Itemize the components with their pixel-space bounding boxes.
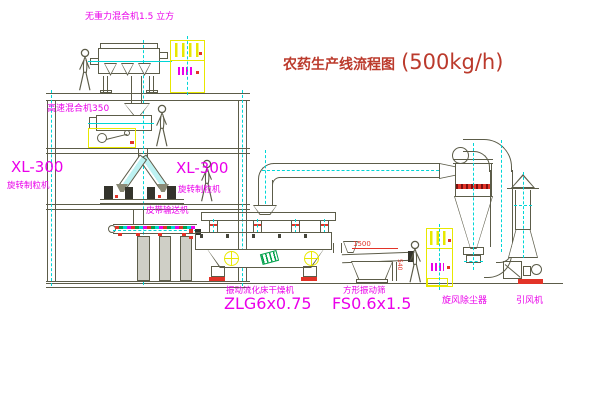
- stack-cross: [514, 205, 532, 206]
- duct-top-wall: [273, 163, 440, 164]
- dryer-body-bolts: [200, 234, 328, 238]
- elevator2-boot: [427, 278, 448, 286]
- elevator2-red-dot: [448, 239, 451, 242]
- label-high-speed-mixer: 高速混合机350: [47, 105, 109, 114]
- belt-stripes: [115, 226, 195, 229]
- centerline-column-left: [51, 90, 52, 286]
- fan-base: [518, 279, 543, 284]
- dryer-hood: [201, 212, 336, 221]
- dryer-foot-pad: [301, 277, 317, 281]
- belt-foot: [118, 233, 122, 236]
- duct-elbow-outer: [258, 163, 276, 181]
- label-granulator-left-name: 旋转制粒机: [7, 182, 50, 191]
- vibrator-cross: [311, 251, 312, 266]
- label-belt-conveyor: 皮带输送机: [146, 207, 189, 216]
- sieve-height-dim: 540: [396, 259, 402, 270]
- stub-centerline: [295, 219, 296, 233]
- elevator2-red-dot: [447, 266, 450, 269]
- granulator-red-dot: [115, 195, 118, 198]
- downcomer-centerline: [501, 140, 502, 252]
- dryer-foot-frame: [211, 266, 225, 277]
- label-cyclone: 旋风除尘器: [442, 297, 487, 306]
- mixer-foot: [146, 90, 158, 93]
- granulator-motor-block: [125, 187, 133, 199]
- belt-centerline: [113, 230, 197, 231]
- vibrator-cross: [231, 251, 232, 266]
- diagram-title: 农药生产线流程图 (500kg/h): [283, 50, 503, 74]
- label-granulator-right-model: XL-300: [176, 161, 228, 176]
- sieve-dim-line: [352, 248, 398, 249]
- stub-centerline: [257, 219, 258, 233]
- mixer-discharge-pipe: [131, 76, 142, 103]
- mixer-shaft-stub-right: [159, 52, 168, 59]
- sieve-length-dim: 1500: [353, 241, 371, 248]
- person-figure: [153, 103, 171, 150]
- duct-bottom-wall: [279, 177, 440, 178]
- fan-motor: [531, 264, 542, 275]
- dryer-discharge-spout: [333, 243, 342, 253]
- title-text: 农药生产线流程图: [283, 57, 395, 73]
- duct-centerline: [262, 170, 444, 171]
- mixer-foot: [100, 90, 112, 93]
- elevator2-centerline: [439, 224, 440, 290]
- granulator-motor-block: [147, 187, 155, 199]
- elevator-centerline: [187, 36, 188, 95]
- elevator-red-dot: [199, 52, 202, 55]
- granulator-deck: [100, 199, 184, 204]
- roof-beam: [46, 93, 250, 101]
- sieve-bottom-pad: [356, 279, 388, 283]
- label-gravity-mixer: 无重力混合机1.5 立方: [85, 13, 174, 22]
- riser-centerline: [265, 150, 266, 214]
- dryer-foot-frame: [303, 266, 317, 277]
- feed-cone-face: [125, 104, 149, 115]
- label-granulator-right-name: 旋转制粒机: [178, 186, 221, 195]
- mixer2-shaft-centerline: [88, 123, 154, 124]
- granulator-motor-block: [167, 186, 176, 199]
- stub-centerline: [324, 219, 325, 233]
- label-sieve-model: FS0.6x1.5: [332, 296, 411, 312]
- label-fan: 引风机: [516, 297, 543, 306]
- label-granulator-left-model: XL-300: [11, 160, 63, 175]
- discharge-cross: [464, 261, 483, 262]
- stack-centerline: [523, 172, 524, 258]
- person-figure: [76, 47, 94, 94]
- granulator-red-dot: [158, 195, 161, 198]
- support-pillar: [180, 236, 192, 281]
- label-dryer-model: ZLG6x0.75: [224, 296, 312, 312]
- person-figure: [406, 238, 424, 287]
- elevator-red-dot: [196, 71, 199, 74]
- elevator2-text-marks: [431, 263, 444, 271]
- drive-red-mark: [130, 141, 134, 144]
- fan-motor-block: [523, 266, 531, 276]
- stub-centerline: [213, 219, 214, 233]
- dryer-inlet-red-mark: [189, 236, 193, 239]
- drive-pulley: [124, 130, 130, 136]
- dryer-foot-pad: [209, 277, 225, 281]
- elevator-text-marks: [178, 67, 192, 75]
- title-capacity: (500kg/h): [401, 50, 503, 74]
- granulator-motor-block: [104, 186, 113, 199]
- support-pillar: [159, 236, 171, 281]
- ground-beam: [46, 281, 250, 288]
- process-flow-diagram: 1500 540: [0, 0, 600, 403]
- mixer-shaft-centerline: [88, 61, 172, 62]
- floor2-slab: [46, 148, 250, 154]
- granulator-discharge-pipe: [133, 210, 144, 225]
- support-pillar: [137, 236, 150, 281]
- dryer-inlet-red-mark: [189, 229, 193, 233]
